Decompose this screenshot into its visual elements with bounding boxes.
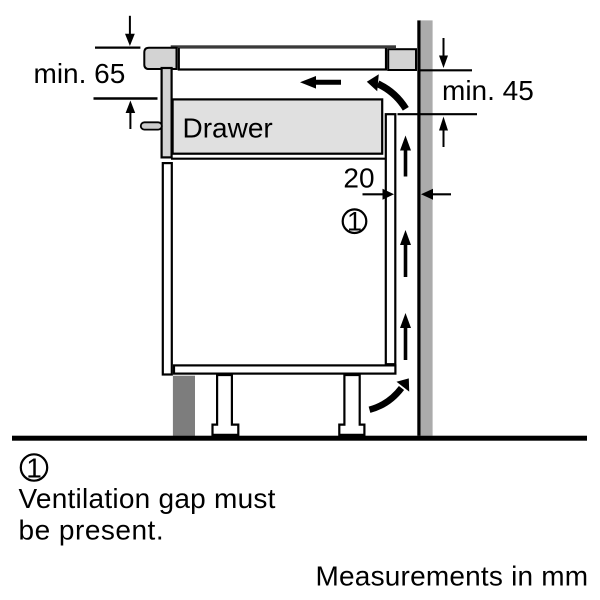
svg-text:be present.: be present.: [19, 515, 165, 546]
svg-text:Measurements in mm: Measurements in mm: [316, 561, 589, 592]
svg-text:1: 1: [26, 453, 42, 484]
svg-text:20: 20: [343, 163, 374, 194]
svg-text:1: 1: [347, 206, 362, 236]
svg-text:Drawer: Drawer: [183, 112, 273, 143]
svg-text:min. 45: min. 45: [442, 75, 534, 106]
svg-text:min. 65: min. 65: [34, 58, 126, 89]
svg-text:Ventilation gap must: Ventilation gap must: [19, 483, 276, 514]
